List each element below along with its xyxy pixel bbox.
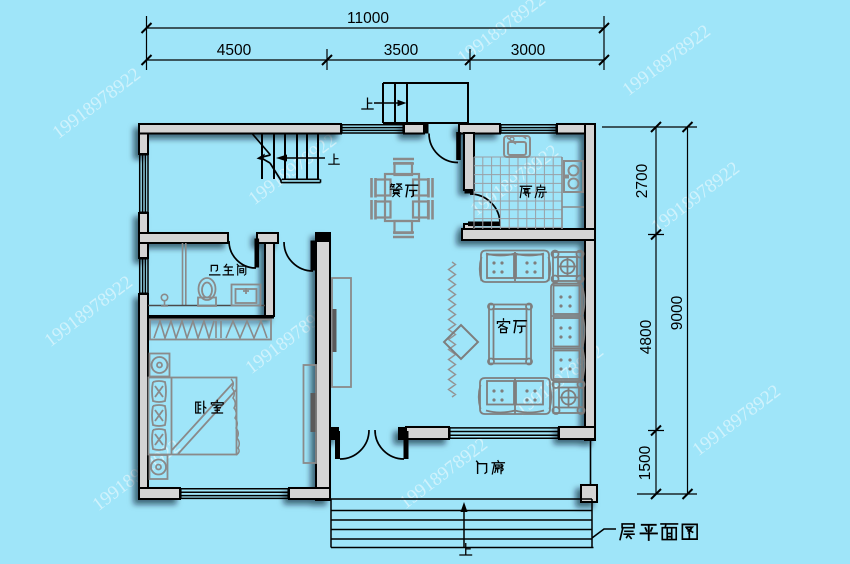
svg-text:3500: 3500 [384,42,419,59]
svg-text:1500: 1500 [637,445,654,480]
svg-text:4800: 4800 [638,319,655,354]
svg-text:2700: 2700 [634,163,651,198]
svg-text:4500: 4500 [217,42,252,59]
svg-text:11000: 11000 [347,10,389,27]
svg-text:9000: 9000 [669,295,686,330]
svg-text:3000: 3000 [511,42,546,59]
